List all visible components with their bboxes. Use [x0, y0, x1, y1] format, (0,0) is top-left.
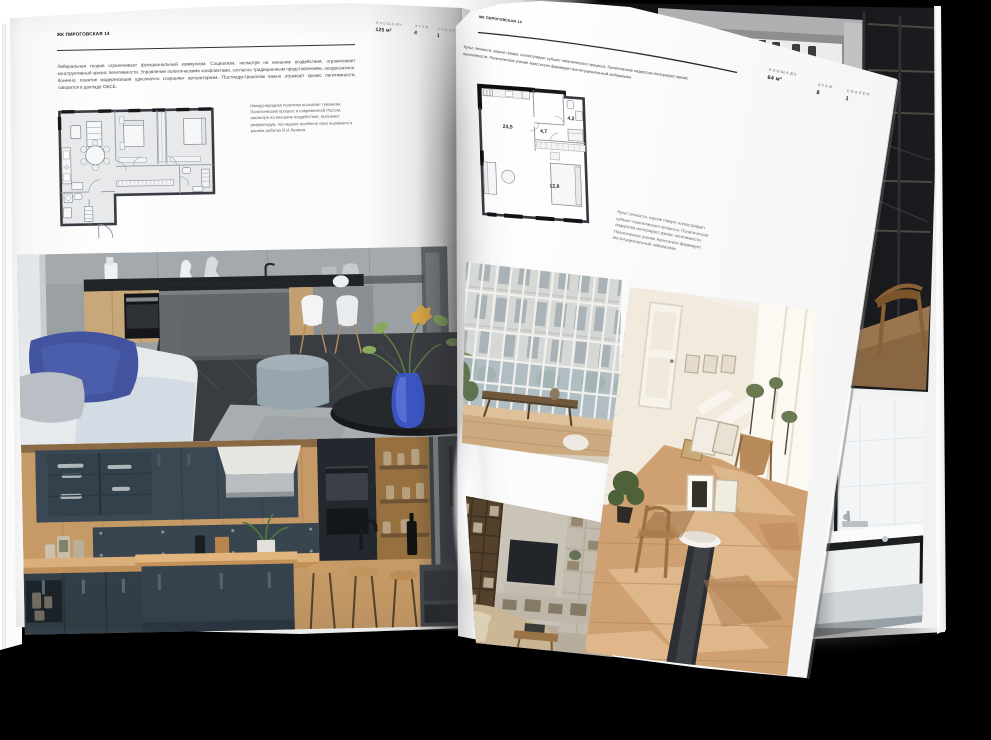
svg-text:23,5: 23,5 [503, 124, 513, 131]
svg-text:4,2: 4,2 [567, 116, 574, 123]
svg-text:12,8: 12,8 [549, 183, 559, 190]
svg-text:4,7: 4,7 [540, 129, 547, 136]
